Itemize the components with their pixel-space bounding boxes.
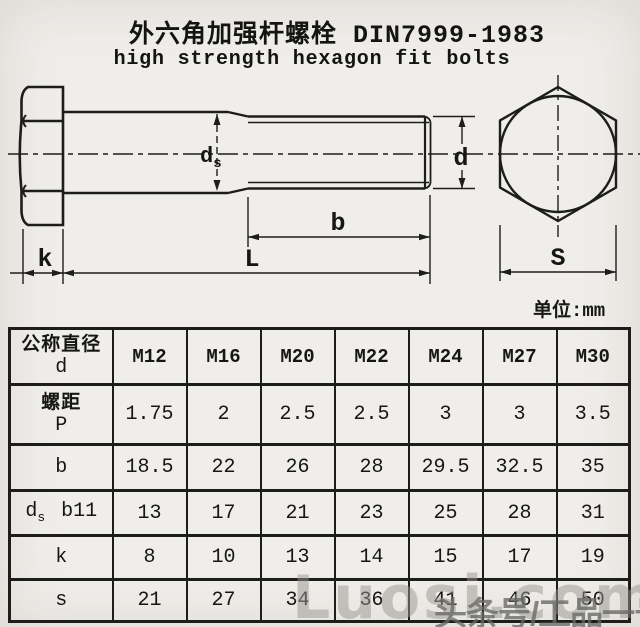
column-header: M12 (113, 329, 187, 385)
table-cell: 13 (261, 536, 335, 580)
table-cell: 2 (187, 385, 261, 445)
page-title: 外六角加强杆螺栓 DIN7999-1983 (0, 14, 640, 50)
hex-end-view: S (500, 75, 616, 281)
table-cell: 3 (483, 385, 557, 445)
unit-note: 单位:mm (533, 295, 605, 322)
label-d: d (453, 144, 468, 173)
table-cell: 50 (557, 580, 630, 622)
row-header-pitch: 螺距 P (10, 385, 113, 445)
table-cell: 28 (483, 491, 557, 536)
table-cell: 19 (557, 536, 630, 580)
table-cell: 2.5 (335, 385, 409, 445)
row-label-letter: dsb11 (25, 500, 97, 523)
row-label-letter: b (55, 456, 67, 479)
row-header-b: b (10, 445, 113, 491)
bolt-head-side-view (20, 87, 63, 225)
table-cell: 2.5 (261, 385, 335, 445)
table-cell: 3 (409, 385, 483, 445)
row-header-s: s (10, 580, 113, 622)
table-cell: 3.5 (557, 385, 630, 445)
row-label-zh: 螺距 (11, 392, 112, 415)
table-cell: 17 (483, 536, 557, 580)
table-cell: 13 (113, 491, 187, 536)
table-cell: 25 (409, 491, 483, 536)
dimension-d: d (433, 117, 475, 189)
table-cell: 14 (335, 536, 409, 580)
dimension-k-L: k L (10, 195, 430, 284)
bolt-shank (63, 112, 248, 193)
table-cell: 21 (261, 491, 335, 536)
spec-sheet-page: 外六角加强杆螺栓 DIN7999-1983 high strength hexa… (0, 0, 640, 627)
table-row-head-height: k 8 10 13 14 15 17 19 (10, 536, 630, 580)
table-cell: 41 (409, 580, 483, 622)
row-header-k: k (10, 536, 113, 580)
row-header-line2: d (11, 356, 112, 379)
table-cell: 34 (261, 580, 335, 622)
table-cell: 28 (335, 445, 409, 491)
label-b: b (330, 209, 345, 238)
table-cell: 35 (557, 445, 630, 491)
table-cell: 26 (261, 445, 335, 491)
table-row-shank-diameter: dsb11 13 17 21 23 25 28 31 (10, 491, 630, 536)
table-cell: 1.75 (113, 385, 187, 445)
table-cell: 31 (557, 491, 630, 536)
row-label-letter: P (11, 414, 112, 437)
row-header-nominal-diameter: 公称直径 d (10, 329, 113, 385)
label-k: k (37, 245, 52, 274)
table-cell: 29.5 (409, 445, 483, 491)
table-cell: 23 (335, 491, 409, 536)
column-header: M16 (187, 329, 261, 385)
dimension-table: 公称直径 d M12 M16 M20 M22 M24 M27 M30 螺距 P … (8, 327, 631, 623)
row-label-letter: s (55, 589, 67, 612)
column-header: M30 (557, 329, 630, 385)
table-row-width-across-flats: s 21 27 34 36 41 46 50 (10, 580, 630, 622)
dimension-b: b (248, 197, 430, 247)
table-cell: 17 (187, 491, 261, 536)
column-header: M24 (409, 329, 483, 385)
row-label-letter: k (55, 546, 67, 569)
label-ds: ds (200, 144, 222, 172)
dimension-ds: ds (200, 114, 222, 191)
table-cell: 21 (113, 580, 187, 622)
column-header: M20 (261, 329, 335, 385)
row-header-line1: 公称直径 (11, 334, 112, 357)
table-cell: 22 (187, 445, 261, 491)
table-cell: 10 (187, 536, 261, 580)
table-cell: 8 (113, 536, 187, 580)
column-header: M27 (483, 329, 557, 385)
table-row-header: 公称直径 d M12 M16 M20 M22 M24 M27 M30 (10, 329, 630, 385)
column-header: M22 (335, 329, 409, 385)
table-cell: 27 (187, 580, 261, 622)
row-header-ds-b11: dsb11 (10, 491, 113, 536)
label-L: L (244, 245, 259, 274)
table-cell: 18.5 (113, 445, 187, 491)
table-row-thread-length: b 18.5 22 26 28 29.5 32.5 35 (10, 445, 630, 491)
bolt-technical-drawing: ds d b k L (0, 75, 640, 325)
table-cell: 46 (483, 580, 557, 622)
bolt-thread (248, 117, 431, 189)
table-cell: 32.5 (483, 445, 557, 491)
page-subtitle: high strength hexagon fit bolts (0, 48, 640, 71)
table-cell: 15 (409, 536, 483, 580)
table-row-pitch: 螺距 P 1.75 2 2.5 2.5 3 3 3.5 (10, 385, 630, 445)
table-cell: 36 (335, 580, 409, 622)
label-S: S (550, 244, 565, 273)
